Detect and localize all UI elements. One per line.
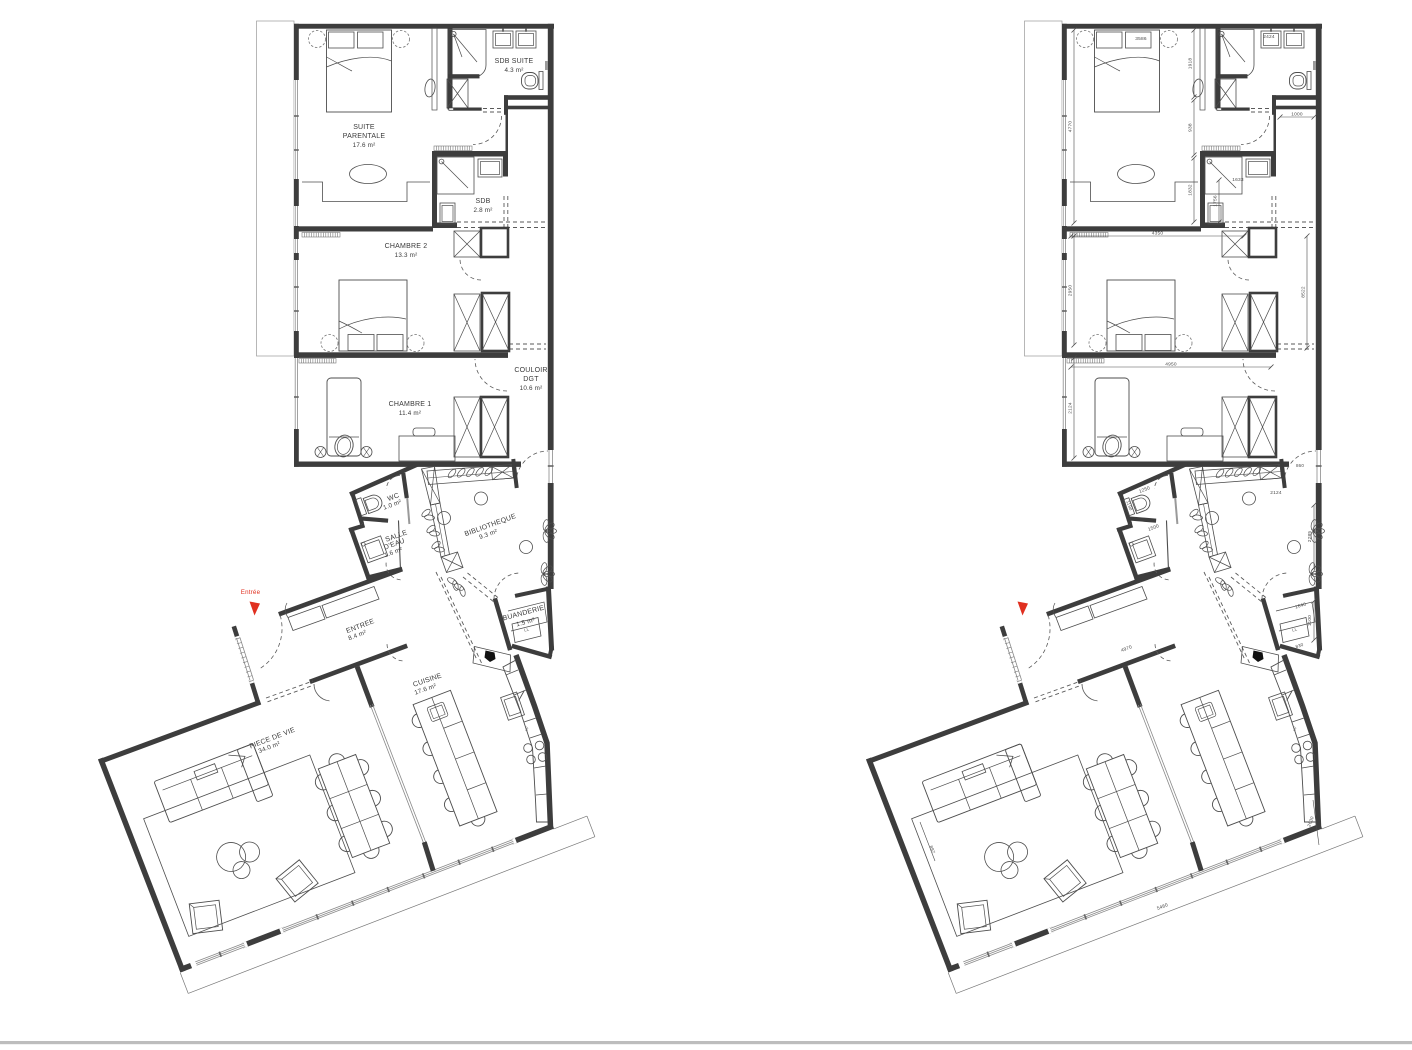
svg-text:CHAMBRE 2: CHAMBRE 2	[385, 243, 428, 250]
svg-text:2424: 2424	[1263, 34, 1275, 40]
svg-text:2285: 2285	[1307, 531, 1313, 543]
svg-text:2124: 2124	[1270, 490, 1282, 496]
svg-text:SDB SUITE: SDB SUITE	[495, 58, 534, 65]
svg-text:4.3 m²: 4.3 m²	[504, 67, 523, 74]
svg-text:4350: 4350	[1152, 231, 1164, 237]
svg-text:1918: 1918	[1188, 58, 1194, 70]
svg-text:8522: 8522	[1301, 286, 1307, 298]
svg-text:PARENTALE: PARENTALE	[343, 133, 386, 140]
svg-text:3586: 3586	[1135, 36, 1147, 42]
svg-text:CHAMBRE 1: CHAMBRE 1	[389, 401, 432, 408]
svg-text:17.6 m²: 17.6 m²	[353, 142, 376, 149]
svg-text:4950: 4950	[1165, 362, 1177, 368]
svg-text:COULOIR: COULOIR	[514, 367, 547, 374]
svg-text:1756: 1756	[1213, 195, 1219, 207]
svg-text:11.4 m²: 11.4 m²	[399, 410, 421, 417]
svg-text:1633: 1633	[1232, 177, 1244, 183]
svg-text:938: 938	[1188, 123, 1194, 132]
svg-text:13.3 m²: 13.3 m²	[395, 252, 418, 259]
svg-text:4770: 4770	[1068, 121, 1074, 133]
svg-text:1100: 1100	[1307, 615, 1313, 626]
svg-text:SUITE: SUITE	[353, 124, 375, 131]
svg-text:2.8 m²: 2.8 m²	[473, 207, 492, 214]
svg-text:Entrée: Entrée	[241, 589, 261, 596]
svg-text:1000: 1000	[1291, 112, 1303, 118]
svg-text:10.6 m²: 10.6 m²	[520, 385, 543, 392]
svg-text:1832: 1832	[1188, 184, 1194, 196]
svg-text:SDB: SDB	[476, 198, 491, 205]
svg-text:2124: 2124	[1068, 402, 1074, 414]
svg-text:860: 860	[1296, 463, 1304, 468]
svg-text:2950: 2950	[1068, 285, 1074, 297]
svg-text:DGT: DGT	[523, 376, 539, 383]
